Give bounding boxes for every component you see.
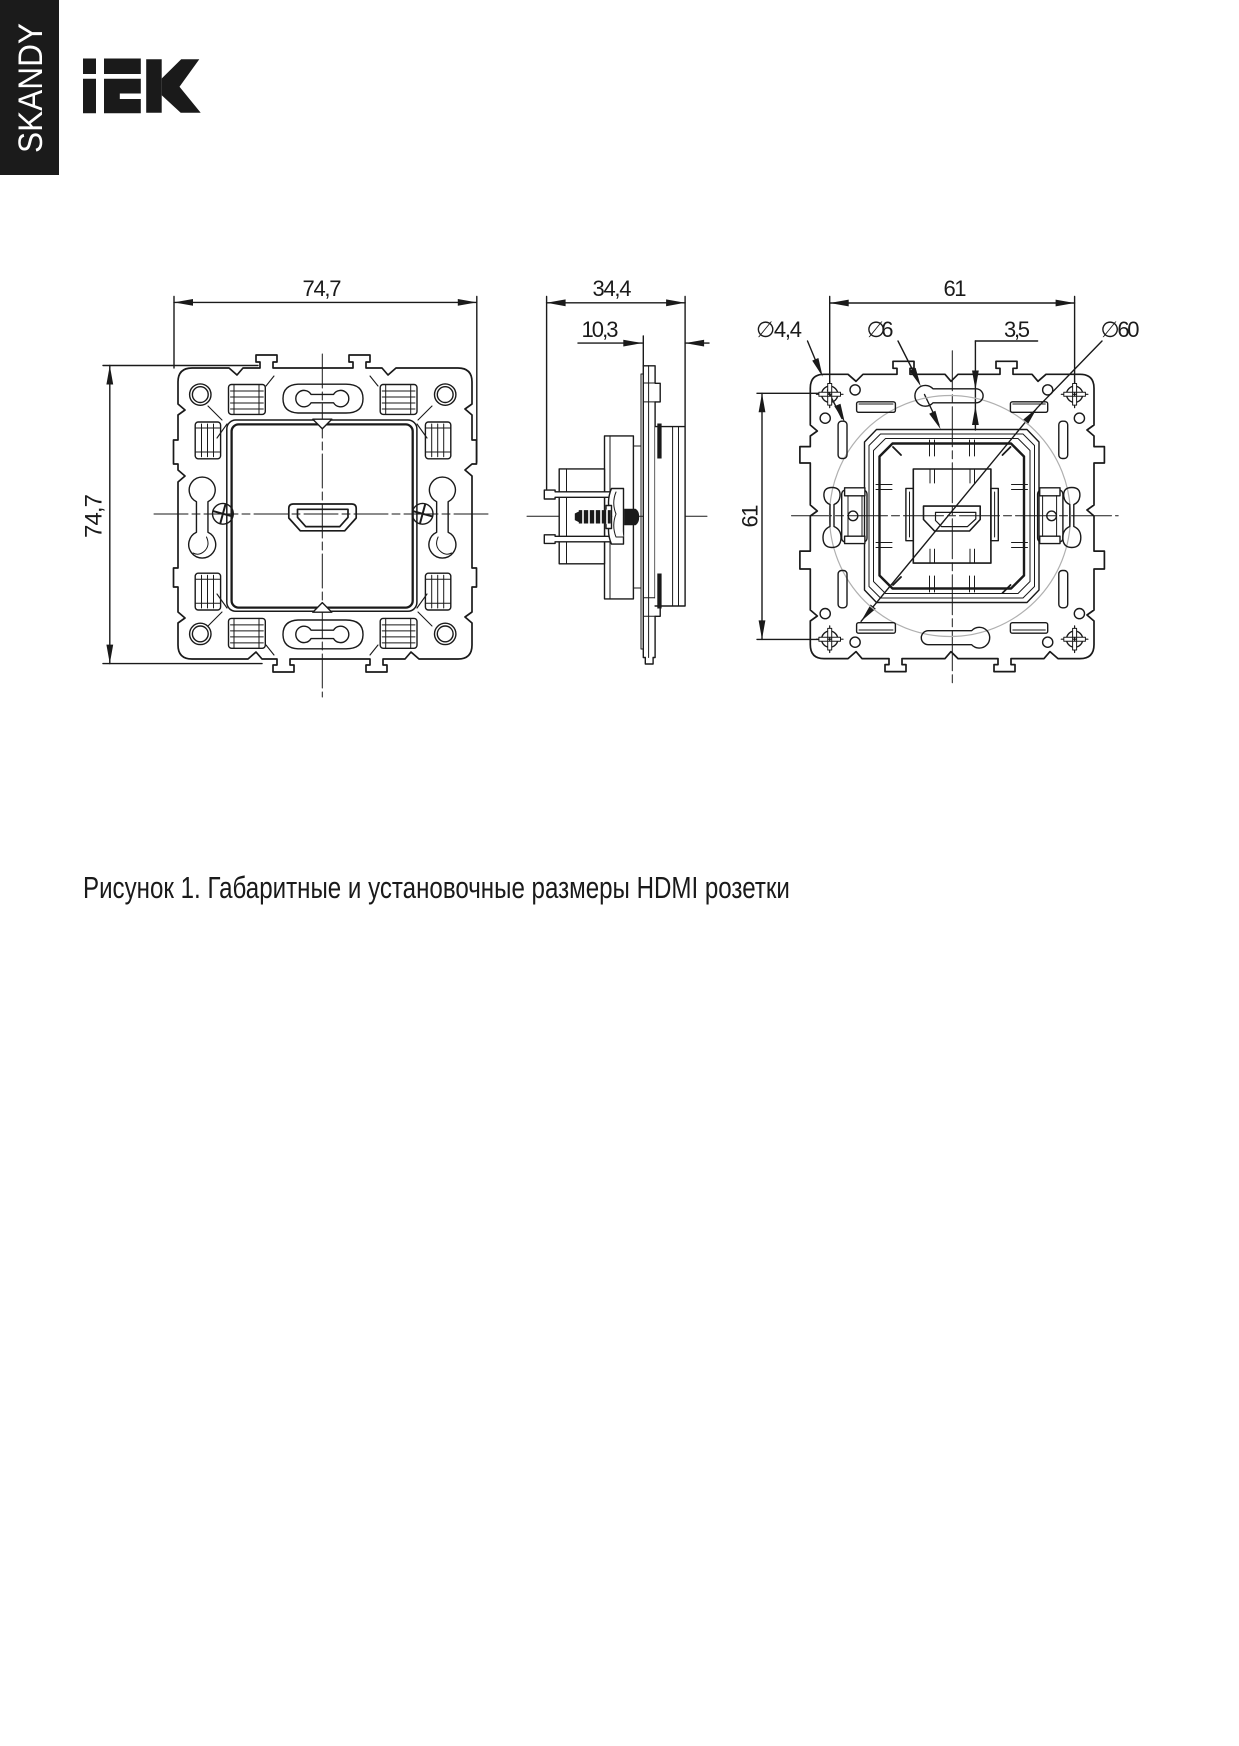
svg-text:Рисунок 1. Габаритные и устано: Рисунок 1. Габаритные и установочные раз… [83,870,790,905]
svg-text:10,3: 10,3 [582,317,619,342]
svg-text:74,7: 74,7 [81,494,108,538]
svg-text:34,4: 34,4 [593,276,632,301]
svg-text:∅4,4: ∅4,4 [756,317,802,342]
svg-text:74,7: 74,7 [303,276,342,301]
svg-text:SKANDY: SKANDY [11,23,49,153]
svg-text:61: 61 [944,276,967,301]
svg-text:3,5: 3,5 [1004,317,1030,342]
svg-text:61: 61 [738,505,763,528]
svg-text:∅6: ∅6 [867,317,894,342]
svg-text:∅60: ∅60 [1101,317,1140,342]
